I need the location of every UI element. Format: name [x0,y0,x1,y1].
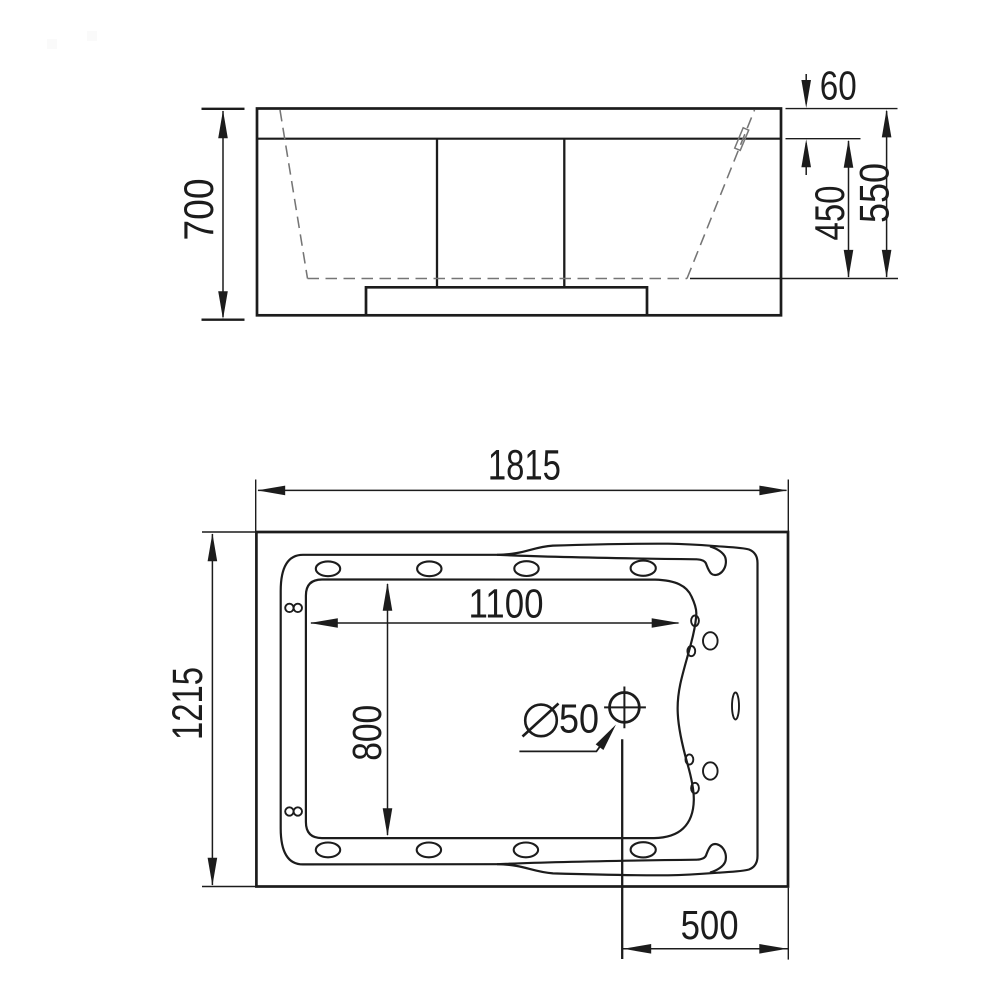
svg-text:550: 550 [850,163,897,223]
svg-text:50: 50 [559,696,599,742]
svg-text:800: 800 [344,705,390,761]
svg-text:700: 700 [175,179,222,241]
svg-text:60: 60 [820,63,857,109]
svg-text:1815: 1815 [488,442,561,490]
svg-text:450: 450 [806,186,853,241]
svg-text:500: 500 [681,902,739,948]
svg-text:1100: 1100 [469,580,544,626]
svg-text:1215: 1215 [164,667,212,740]
